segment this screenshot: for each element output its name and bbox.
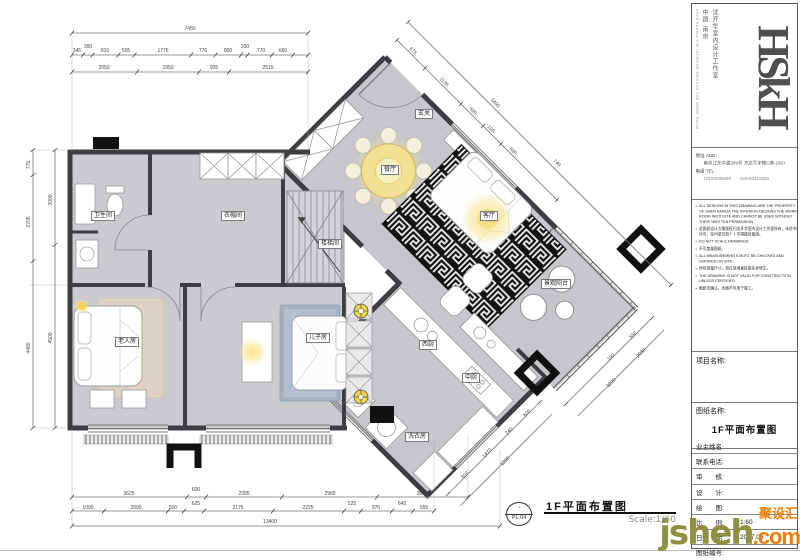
svg-text:500: 500 [468, 106, 478, 116]
svg-text:500: 500 [169, 505, 178, 511]
note-item: 图纸未确认，本图不可用于施工。 [696, 286, 798, 291]
site-watermark: 聚设汇 jsheh.com [620, 508, 800, 548]
svg-text:3200: 3200 [605, 377, 617, 389]
svg-text:775: 775 [26, 161, 32, 170]
svg-text:2175: 2175 [232, 505, 243, 511]
svg-text:3400: 3400 [489, 97, 501, 109]
elder-room-furniture [74, 287, 180, 408]
svg-text:505: 505 [122, 48, 131, 54]
note-item: 所有测量尺寸，须在现场复核查实并修正。 [696, 266, 798, 271]
svg-text:800: 800 [224, 48, 233, 54]
svg-text:1470: 1470 [481, 447, 493, 459]
svg-text:2705: 2705 [26, 216, 32, 227]
svg-text:600: 600 [192, 487, 201, 493]
svg-text:2225: 2225 [302, 505, 313, 511]
svg-text:655: 655 [420, 505, 429, 511]
svg-text:200: 200 [241, 44, 250, 50]
tel-label: 电话 TEL： [696, 167, 798, 175]
window-sill-hatch [84, 435, 168, 444]
room-label-dining: 餐厅 [381, 165, 399, 175]
svg-text:13400: 13400 [263, 519, 277, 525]
note-item: 此图纸设计方案版权归沈开华室内设计工作室所有，未经书面许可，任何单位和个人不得擅… [696, 227, 798, 238]
svg-text:300: 300 [84, 44, 93, 50]
svg-text:645: 645 [398, 501, 407, 507]
sheet-number: PL.04 [507, 515, 531, 521]
svg-text:970: 970 [372, 505, 381, 511]
svg-text:2050: 2050 [98, 65, 109, 71]
note-item: 不可度量图纸。 [696, 246, 798, 251]
room-label-elder-room: 老人房 [115, 337, 139, 347]
room-label-living: 客厅 [480, 211, 498, 221]
watermark-tld: .com [753, 524, 800, 549]
notes-section: ALL DESIGNS IN THIS DRAWING ARE THE PROP… [692, 200, 797, 352]
address-value: 南京江东中路289号 万达写字楼C座-2907 [696, 160, 798, 168]
room-label-chinese-kitchen: 中厨 [462, 373, 480, 383]
tel-value: 13182696099 025-86310558 [696, 175, 798, 183]
contact-section: 地址 ADD： 南京江东中路289号 万达写字楼C座-2907 电话 TEL： … [692, 148, 797, 200]
svg-text:1000: 1000 [82, 505, 93, 511]
svg-text:770: 770 [199, 48, 208, 54]
field-row-phone: 联系电话: [692, 454, 797, 469]
field-row-design: 设 计: [692, 485, 797, 500]
logo-section: SHEN KAIHUA THE INTERIOR DESIGNS THE WOR… [692, 4, 797, 148]
svg-text:4480: 4480 [26, 342, 32, 353]
project-name-label: 项目名称: [696, 358, 726, 365]
cloakroom-wardrobe [200, 153, 284, 179]
svg-text:1775: 1775 [157, 48, 168, 54]
room-label-son-room: 儿子房 [306, 333, 330, 343]
drawing-name-value: 1F平面布置图 [696, 422, 793, 436]
svg-text:770: 770 [257, 48, 266, 54]
svg-text:2515: 2515 [262, 65, 273, 71]
room-label-stairwell: 楼梯间 [318, 239, 342, 249]
room-label-bathroom: 卫生间 [91, 211, 115, 221]
svg-text:935: 935 [210, 65, 219, 71]
field-row-owner: 业主姓名: [692, 439, 797, 454]
svg-text:550: 550 [628, 330, 638, 340]
svg-text:3625: 3625 [123, 491, 134, 497]
svg-text:3000: 3000 [48, 194, 54, 205]
svg-text:2930: 2930 [635, 347, 647, 359]
sheet-number-bubble: – PL.04 [506, 502, 532, 526]
floor-plan-svg: 7450 345 300 810 505 1775 770 800 200 77… [0, 0, 800, 551]
svg-text:2000: 2000 [130, 505, 141, 511]
svg-text:4500: 4500 [48, 332, 54, 343]
title-block-panel: SHEN KAIHUA THE INTERIOR DESIGNS THE WOR… [691, 3, 798, 549]
svg-text:190: 190 [486, 124, 496, 134]
svg-text:1135: 1135 [438, 76, 450, 88]
note-item: ALL MEASUREMENTS MUST BE CHECKED AND VER… [696, 254, 798, 265]
svg-text:1200: 1200 [499, 455, 511, 467]
svg-text:600: 600 [508, 146, 518, 156]
project-name-section: 项目名称: [692, 352, 797, 403]
room-label-entry: 玄关 [415, 109, 433, 119]
svg-text:240: 240 [504, 426, 514, 436]
svg-text:660: 660 [279, 48, 288, 54]
drawing-name-label: 图纸名称: [696, 408, 726, 415]
note-item: THE DRAWING IS NOT VALID FOR CONSTRUCTIO… [696, 273, 798, 284]
field-row-check: 审 核: [692, 469, 797, 484]
svg-text:800: 800 [460, 470, 470, 480]
svg-text:1950: 1950 [162, 65, 173, 71]
svg-text:7450: 7450 [184, 26, 195, 32]
note-item: DO NOT SCALE DRAWINGS. [696, 239, 798, 244]
address-label: 地址 ADD： [696, 152, 798, 160]
watermark-site: jsheh [659, 513, 752, 553]
svg-text:345: 345 [73, 48, 82, 54]
svg-text:525: 525 [348, 501, 357, 507]
svg-text:2980: 2980 [324, 491, 335, 497]
svg-text:625: 625 [192, 501, 201, 507]
room-label-cloakroom: 衣帽间 [221, 211, 245, 221]
window-sill-hatch [200, 435, 332, 444]
room-label-balcony: 景观阳台 [541, 279, 571, 289]
room-label-west-kitchen: 西厨 [419, 340, 437, 350]
stairwell [287, 191, 343, 283]
svg-text:2865: 2865 [416, 491, 427, 497]
bubble-dash: – [507, 505, 531, 511]
svg-text:190: 190 [606, 352, 616, 362]
brand-country: 中国·南京 [700, 9, 709, 141]
drawing-sheet: 7450 345 300 810 505 1775 770 800 200 77… [0, 0, 800, 551]
note-item: ALL DESIGNS IN THIS DRAWING ARE THE PROP… [696, 204, 798, 225]
room-label-laundry: 洗衣房 [405, 432, 429, 442]
svg-text:2395: 2395 [238, 491, 249, 497]
brand-tagline-en: SHEN KAIHUA THE INTERIOR DESIGNS THE WOR… [695, 9, 699, 141]
svg-text:600: 600 [522, 408, 532, 418]
hskh-logo: HSkH [714, 16, 797, 136]
hskh-logo-text: HSkH [749, 25, 798, 126]
svg-text:675: 675 [408, 46, 418, 56]
svg-text:810: 810 [101, 48, 110, 54]
